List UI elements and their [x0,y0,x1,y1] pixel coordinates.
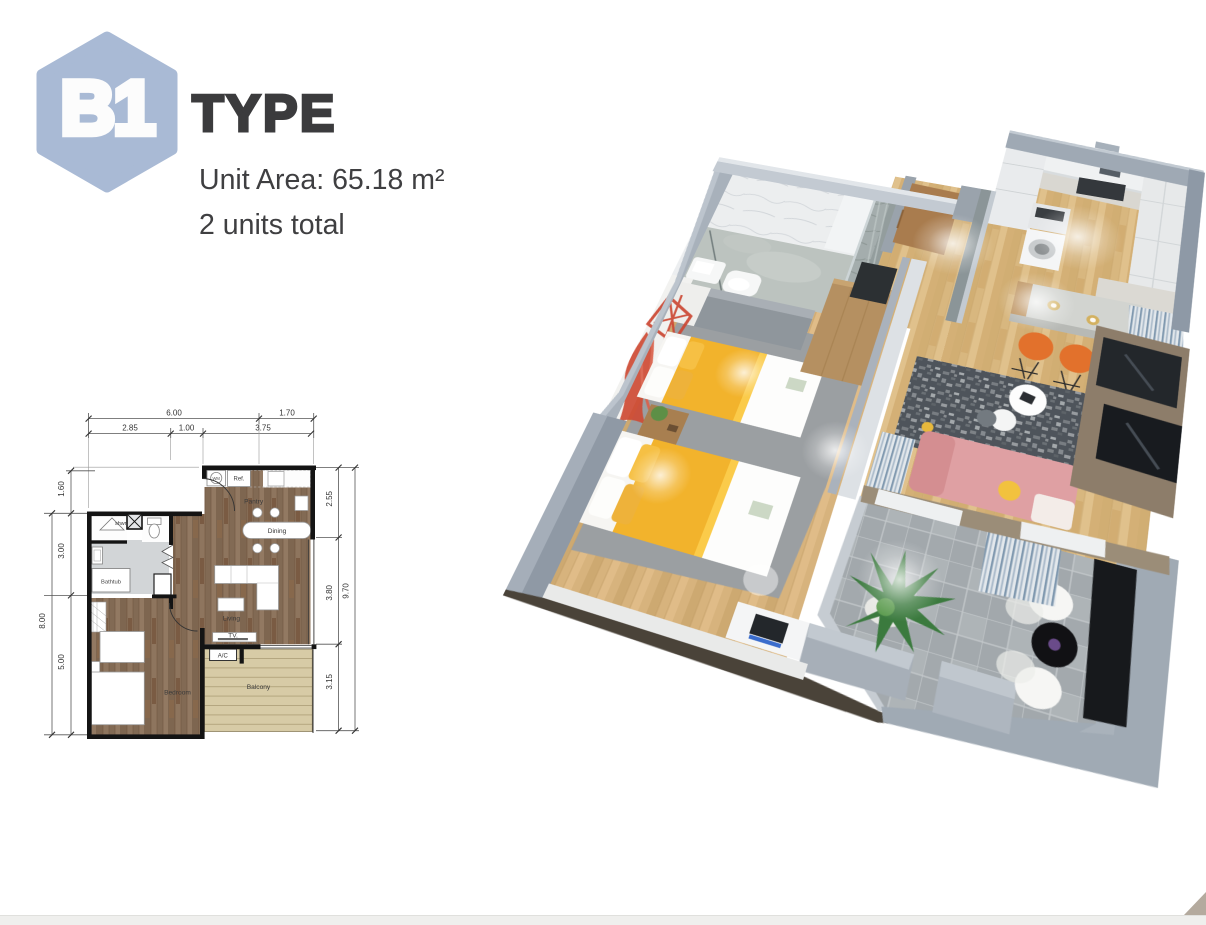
svg-text:B1: B1 [60,66,154,151]
svg-text:Balcony: Balcony [247,684,271,691]
svg-text:Pantry: Pantry [244,499,264,506]
svg-text:3.15: 3.15 [325,673,334,689]
svg-text:A/C: A/C [218,654,229,660]
svg-text:Ref.: Ref. [233,477,244,483]
svg-text:Living: Living [223,616,241,623]
svg-text:TV.: TV. [228,632,238,639]
svg-text:3.00: 3.00 [57,543,66,559]
svg-text:9.70: 9.70 [342,583,351,599]
svg-text:6.00: 6.00 [166,409,182,418]
svg-text:8.00: 8.00 [38,613,47,629]
svg-text:shwr.: shwr. [115,521,128,527]
svg-text:2.55: 2.55 [325,490,334,506]
svg-text:Bedroom: Bedroom [164,690,191,697]
svg-text:Dining: Dining [268,528,287,535]
svg-text:1.00: 1.00 [179,424,195,433]
svg-text:3.80: 3.80 [325,584,334,600]
svg-text:3.75: 3.75 [255,424,271,433]
svg-text:1.60: 1.60 [57,481,66,497]
svg-text:1.70: 1.70 [279,409,295,418]
svg-text:Bathtub: Bathtub [101,580,121,586]
svg-text:5.00: 5.00 [57,654,66,670]
svg-text:2.85: 2.85 [122,424,138,433]
svg-text:TYPE: TYPE [192,85,337,143]
